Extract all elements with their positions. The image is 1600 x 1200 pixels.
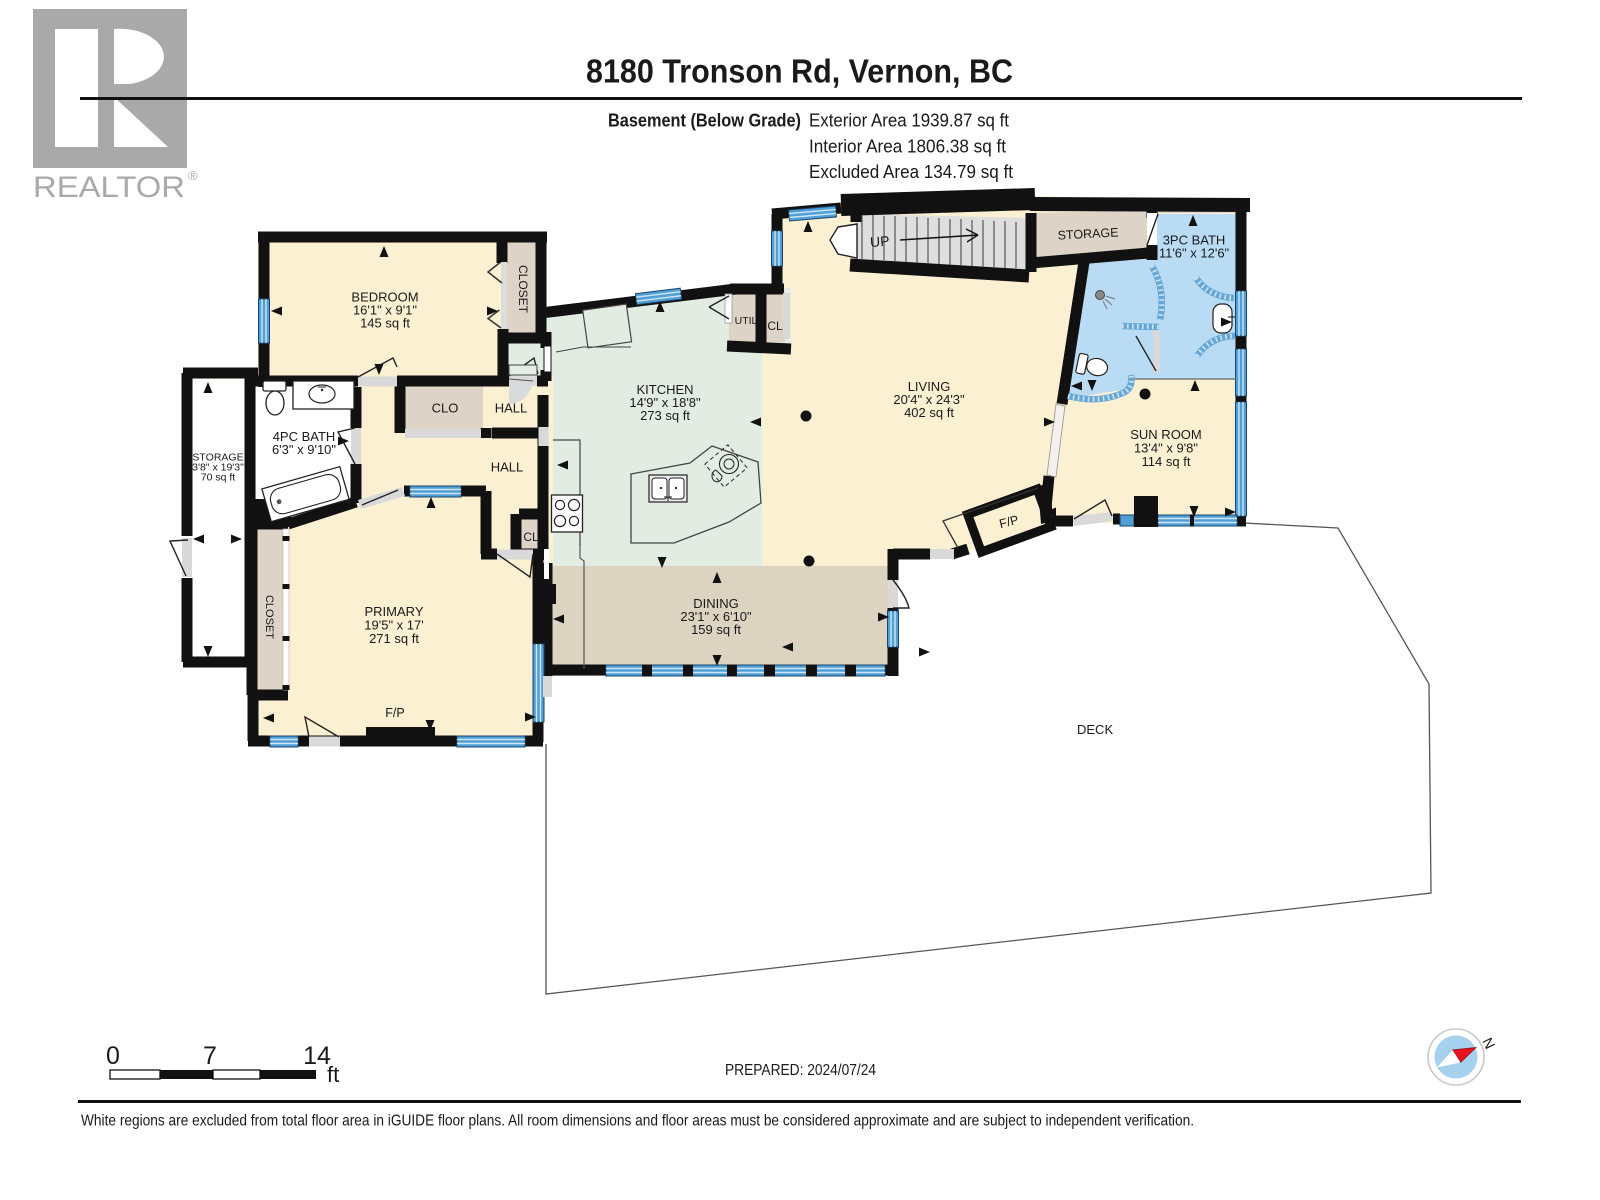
svg-text:UP: UP xyxy=(869,233,890,250)
svg-text:Excluded Area 134.79 sq ft: Excluded Area 134.79 sq ft xyxy=(809,161,1013,182)
svg-text:PREPARED: 2024/07/24: PREPARED: 2024/07/24 xyxy=(725,1062,876,1079)
svg-text:7: 7 xyxy=(203,1042,217,1070)
svg-text:0: 0 xyxy=(106,1042,120,1070)
svg-text:273 sq ft: 273 sq ft xyxy=(640,408,690,423)
svg-text:Interior Area 1806.38 sq ft: Interior Area 1806.38 sq ft xyxy=(809,135,1006,156)
svg-text:ft: ft xyxy=(327,1062,339,1087)
svg-text:159 sq ft: 159 sq ft xyxy=(691,622,741,637)
svg-text:REALTOR: REALTOR xyxy=(33,171,185,204)
svg-text:CL: CL xyxy=(767,319,783,333)
svg-text:8180 Tronson Rd, Vernon, BC: 8180 Tronson Rd, Vernon, BC xyxy=(586,53,1013,90)
svg-text:145 sq ft: 145 sq ft xyxy=(360,316,410,331)
svg-text:6'3" x 9'10": 6'3" x 9'10" xyxy=(272,442,336,457)
svg-text:HALL: HALL xyxy=(491,460,524,475)
svg-text:CLO: CLO xyxy=(432,401,459,416)
svg-text:UTIL: UTIL xyxy=(735,315,758,327)
svg-text:402 sq ft: 402 sq ft xyxy=(904,405,954,420)
svg-text:11'6" x 12'6": 11'6" x 12'6" xyxy=(1159,246,1230,261)
svg-text:DECK: DECK xyxy=(1077,722,1113,737)
svg-text:Basement (Below Grade): Basement (Below Grade) xyxy=(608,110,801,131)
svg-text:CLOSET: CLOSET xyxy=(516,265,530,314)
svg-text:114 sq ft: 114 sq ft xyxy=(1142,454,1191,469)
svg-text:F/P: F/P xyxy=(385,706,404,720)
svg-text:CL: CL xyxy=(523,530,539,544)
svg-text:HALL: HALL xyxy=(495,401,528,416)
svg-text:®: ® xyxy=(188,168,198,183)
svg-text:271 sq ft: 271 sq ft xyxy=(369,631,419,646)
svg-text:CLOSET: CLOSET xyxy=(263,595,275,639)
svg-text:White regions are excluded fro: White regions are excluded from total fl… xyxy=(81,1113,1194,1130)
svg-text:70 sq ft: 70 sq ft xyxy=(201,472,236,484)
svg-text:Exterior Area 1939.87 sq ft: Exterior Area 1939.87 sq ft xyxy=(809,110,1009,131)
